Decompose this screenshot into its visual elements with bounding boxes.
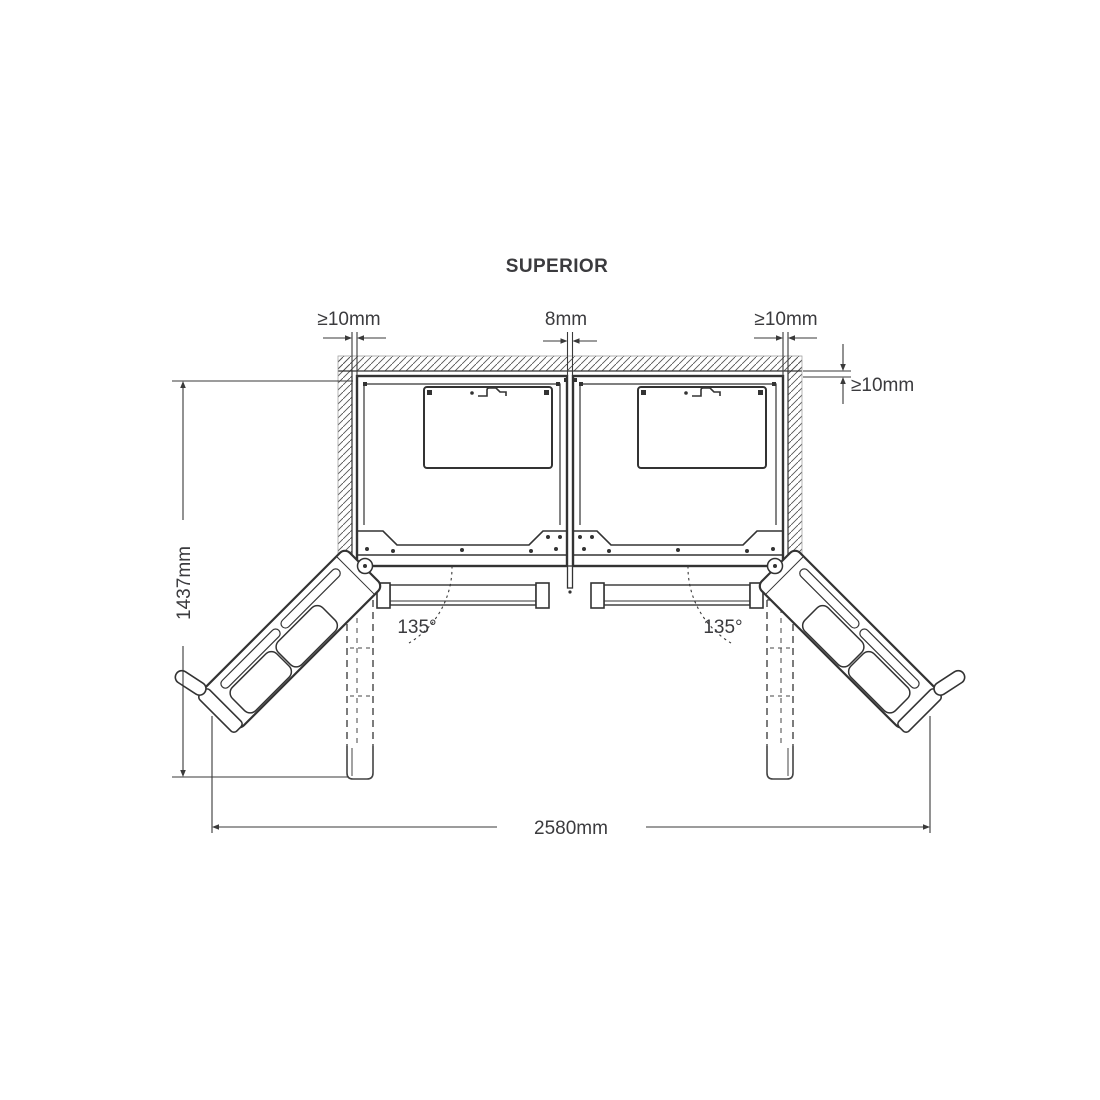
label-width-open: 2580mm [534, 818, 608, 839]
left-compartment-box [424, 387, 552, 468]
label-rear-clearance: ≥10mm [851, 375, 914, 396]
label-top-left-clearance: ≥10mm [317, 309, 380, 330]
diagram-canvas: SUPERIOR ≥10mm 8mm ≥10mm ≥10mm 1437mm 25… [0, 0, 1100, 1100]
right-cabinet [573, 376, 783, 566]
view-title: SUPERIOR [506, 256, 608, 277]
right-base-rail [591, 583, 763, 608]
label-right-door-angle: 135° [703, 617, 742, 638]
right-door-open [757, 526, 969, 738]
right-hinge [768, 559, 783, 574]
left-door-90-dashed [347, 600, 373, 779]
left-door-90-handle-end [347, 746, 373, 779]
label-left-door-angle: 135° [397, 617, 436, 638]
left-hinge [358, 559, 373, 574]
refrigerator-top-view-diagram: SUPERIOR ≥10mm 8mm ≥10mm ≥10mm 1437mm 25… [0, 0, 1100, 1100]
label-top-center-gap: 8mm [545, 309, 587, 330]
right-door-90-handle-end [767, 746, 793, 779]
left-base-rail [377, 583, 549, 608]
label-depth-open: 1437mm [174, 546, 195, 620]
dim-rear-clearance [803, 344, 851, 404]
rear-wall-hatch [338, 356, 802, 371]
right-door-90-dashed [767, 600, 793, 779]
left-door-open [171, 526, 383, 738]
left-cabinet [357, 376, 567, 566]
right-wall-hatch [788, 356, 802, 578]
right-compartment-box [638, 387, 766, 468]
dim-width-open [212, 716, 930, 833]
label-top-right-clearance: ≥10mm [754, 309, 817, 330]
left-wall-hatch [338, 356, 352, 578]
